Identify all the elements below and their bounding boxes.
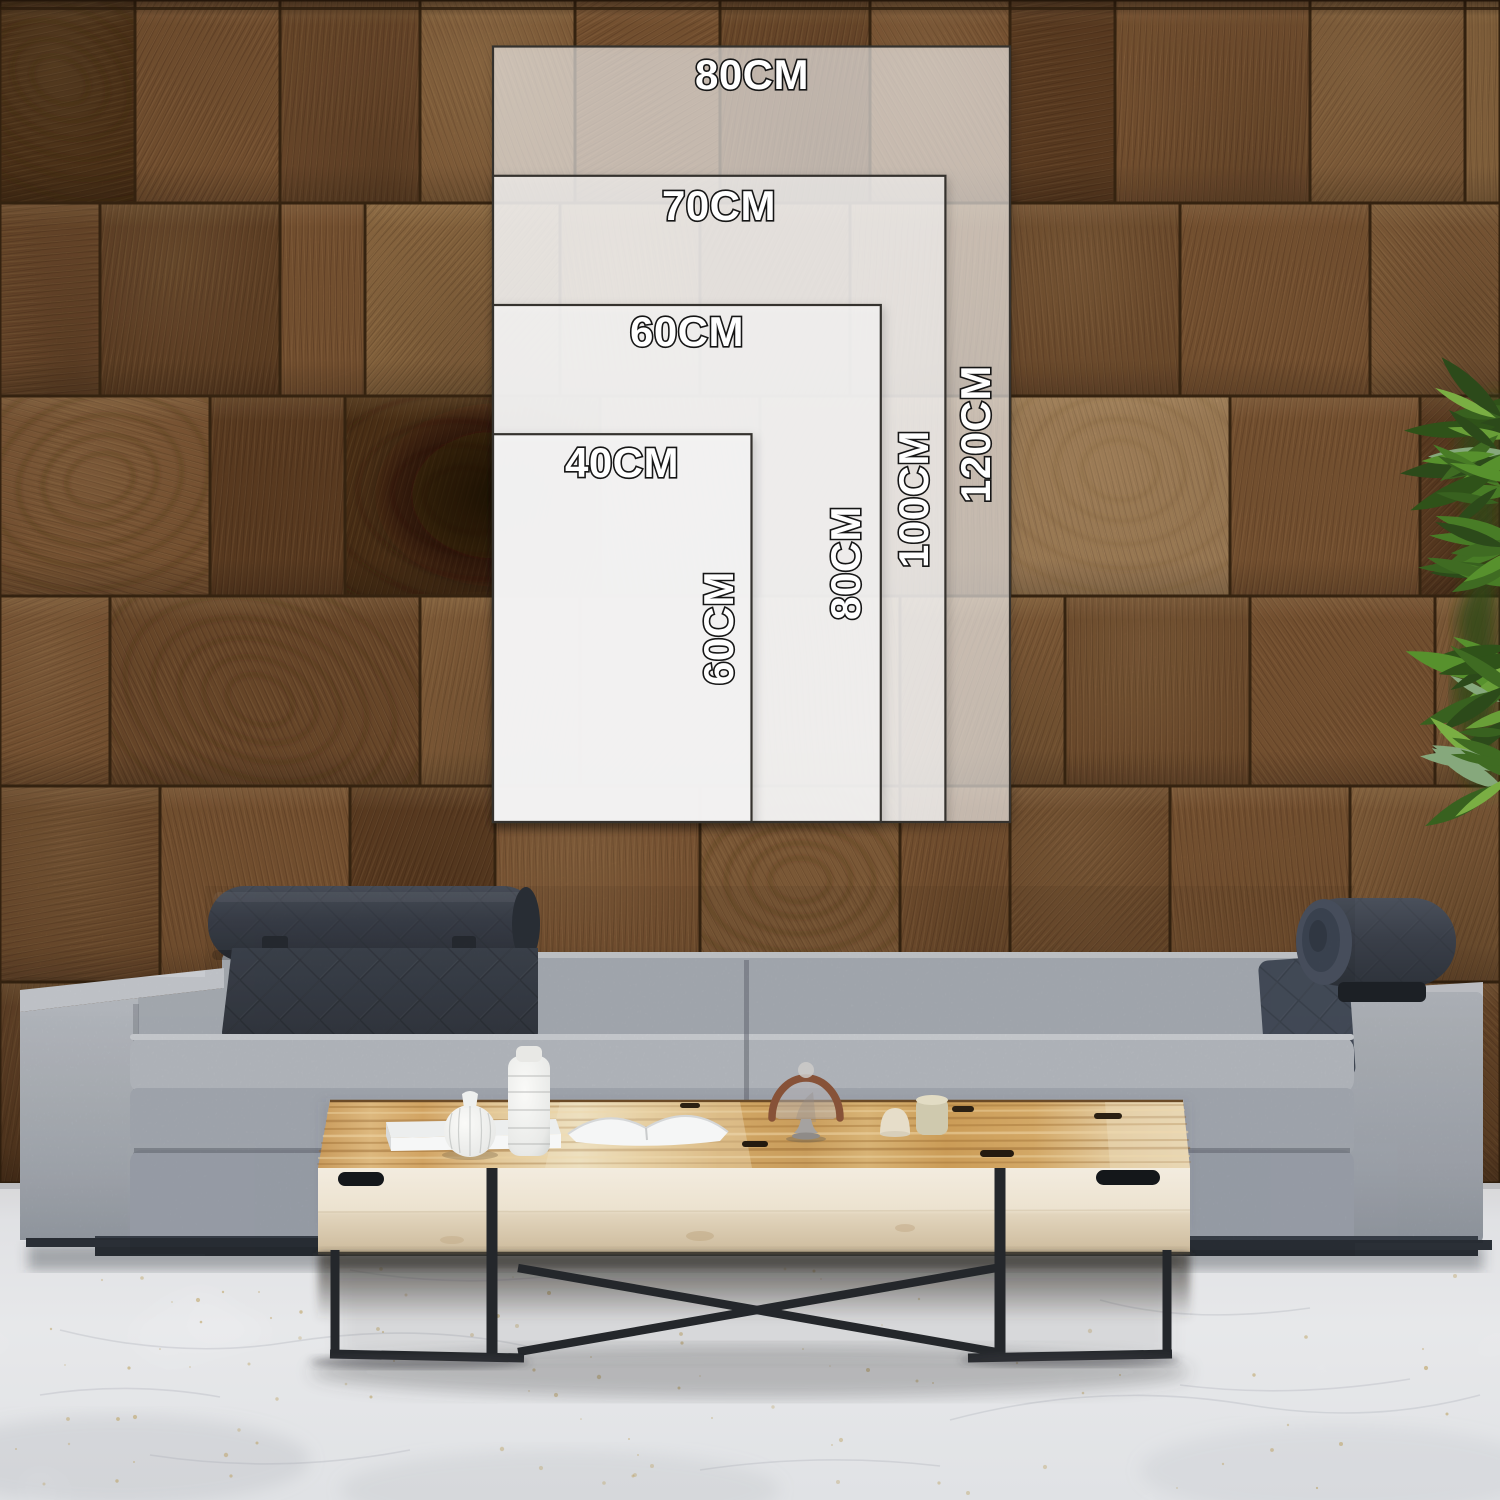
svg-text:80CM: 80CM [695, 51, 809, 98]
svg-text:120CM: 120CM [952, 365, 999, 503]
svg-text:60CM: 60CM [630, 308, 744, 355]
svg-text:40CM: 40CM [565, 439, 679, 486]
svg-text:100CM: 100CM [890, 430, 937, 568]
svg-text:70CM: 70CM [662, 182, 776, 229]
svg-text:80CM: 80CM [822, 506, 869, 620]
svg-text:60CM: 60CM [695, 571, 742, 685]
